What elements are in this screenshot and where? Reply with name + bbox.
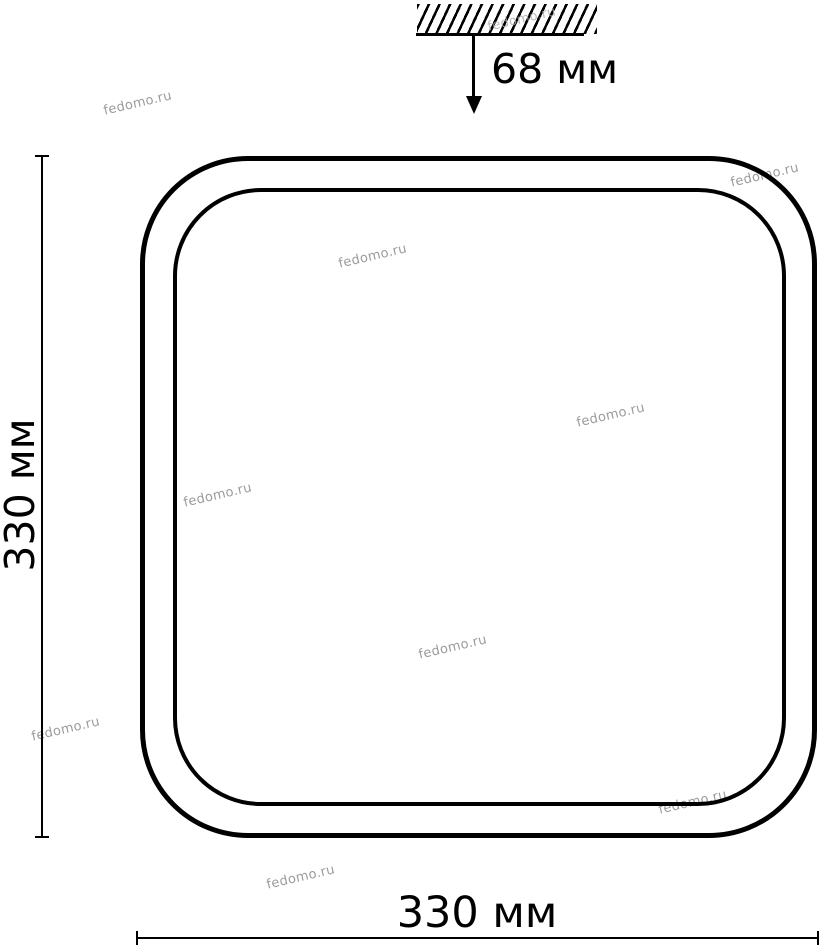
width-dimension-label: 330 мм	[337, 888, 617, 938]
dimension-diagram: 68 мм 330 мм 330 мм fedomo.ru fedomo.ru …	[0, 0, 824, 952]
offset-arrow-head-icon	[466, 96, 482, 114]
watermark: fedomo.ru	[265, 862, 336, 892]
height-dimension-label: 330 мм	[0, 395, 44, 595]
width-dimension-cap-right	[817, 931, 819, 945]
offset-arrow-stem	[472, 36, 475, 98]
lamp-inner-outline	[173, 188, 786, 806]
width-dimension-cap-left	[136, 931, 138, 945]
ceiling-line	[416, 33, 584, 36]
height-dimension-cap-top	[35, 155, 49, 157]
ceiling-offset-label: 68 мм	[491, 46, 618, 94]
watermark: fedomo.ru	[102, 88, 173, 118]
height-dimension-cap-bottom	[35, 836, 49, 838]
